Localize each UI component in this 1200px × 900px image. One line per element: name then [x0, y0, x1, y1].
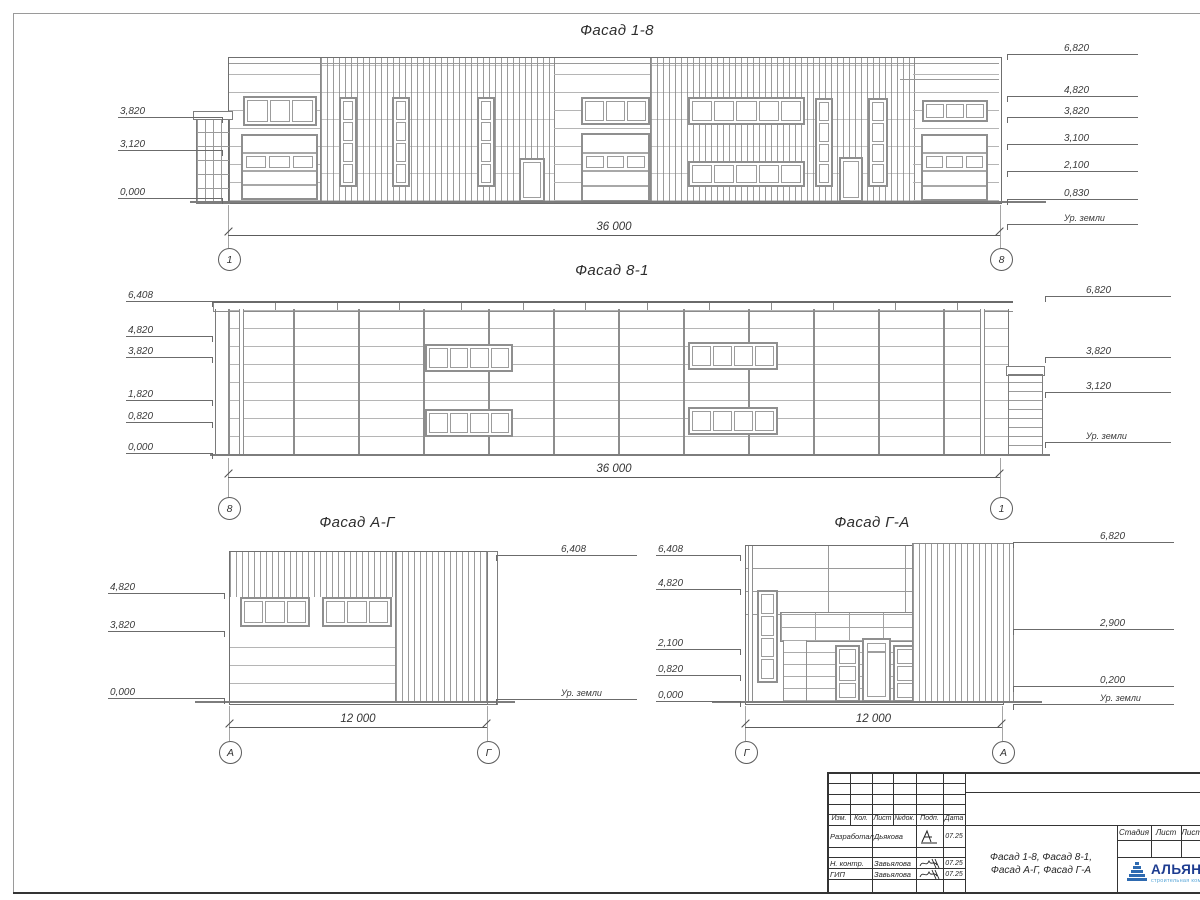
frame-bottom: [13, 892, 1200, 894]
garage-door: [581, 133, 650, 202]
tb-stage: Стадия: [1117, 828, 1151, 837]
extension-line: [1000, 205, 1001, 248]
tb-col-izm: Изм.: [828, 815, 850, 822]
level-mark: 3,820: [1008, 106, 1138, 118]
slat-parapet: [230, 552, 395, 597]
dimension-line: 12 000: [745, 727, 1002, 728]
dimension-label: 36 000: [228, 463, 1000, 475]
axis-bubble: Г: [477, 741, 500, 764]
tall-window: [339, 97, 357, 187]
company-logo-tagline: строительная компания: [1151, 878, 1200, 884]
extension-line: [1000, 458, 1001, 498]
frame-top: [13, 13, 1200, 14]
titleblock-border: [828, 772, 1200, 774]
tb-date: 07.25: [944, 833, 964, 840]
garage-door: [921, 134, 988, 201]
tb-date: 07.25: [944, 860, 964, 867]
level-mark: 6,820: [1008, 43, 1138, 55]
window: [243, 96, 317, 126]
level-mark: 3,820: [108, 620, 224, 632]
ribbon-window: [425, 409, 513, 437]
dimension-label: 12 000: [229, 713, 487, 725]
titleblock-line: [828, 783, 965, 784]
titleblock-border: [827, 772, 829, 893]
level-mark: 3,820: [1046, 346, 1171, 358]
facade-a-g-title: Фасад А-Г: [297, 514, 417, 531]
titleblock-line: [1117, 840, 1200, 841]
ribbon-window: [688, 97, 805, 125]
tb-col-podp: Подп.: [916, 815, 943, 822]
dimension-label: 12 000: [745, 713, 1002, 725]
tb-name: Завьялова: [874, 870, 915, 879]
facade-8-1-body: [228, 309, 1009, 455]
level-mark: 3,100: [1008, 133, 1138, 145]
ground-line: [210, 454, 1050, 456]
company-logo-name: АЛЬЯНС: [1151, 862, 1200, 877]
level-mark: 6,408: [126, 290, 212, 302]
tb-col-kol: Кол.: [850, 815, 872, 822]
axis-bubble: Г: [735, 741, 758, 764]
level-mark: 6,820: [1014, 531, 1174, 543]
downpipe: [980, 309, 985, 455]
signature: [918, 869, 942, 880]
axis-bubble: А: [219, 741, 242, 764]
level-mark: 3,120: [1046, 381, 1171, 393]
tall-window: [477, 97, 495, 187]
door: [839, 157, 863, 202]
ground-level-mark: Ур. земли: [1046, 431, 1171, 443]
signature: [918, 828, 942, 846]
level-mark: 0,000: [118, 187, 222, 199]
ribbon-window: [688, 161, 805, 187]
titleblock-line: [828, 825, 1200, 826]
ribbon-window: [688, 342, 778, 370]
axis-bubble: 8: [990, 248, 1013, 271]
doc-title-line1: Фасад 1-8, Фасад 8-1,: [967, 851, 1115, 864]
tb-role: Разработал: [830, 832, 872, 841]
window: [240, 597, 310, 627]
tb-col-ndok: №док.: [893, 815, 916, 822]
tb-col-list: Лист: [872, 815, 893, 822]
stone-quoin: [783, 640, 807, 701]
level-mark: 4,820: [126, 325, 212, 337]
dimension-line: 12 000: [229, 727, 487, 728]
entrance-canopy: [780, 612, 915, 642]
downpipe: [239, 309, 244, 455]
window: [581, 97, 650, 125]
tb-sheets: Листов: [1181, 828, 1200, 837]
tall-window: [757, 590, 778, 683]
window: [922, 100, 988, 122]
drawing-sheet: Фасад 1-8 3,820 3,120 0,000 6,820 4,820 …: [0, 0, 1200, 900]
tb-name: Дьякова: [874, 832, 915, 841]
dimension-line: 36 000: [228, 235, 1000, 236]
level-mark: 2,100: [1008, 160, 1138, 172]
level-mark: 4,820: [656, 578, 740, 590]
titleblock-line: [916, 773, 917, 893]
tall-window: [815, 98, 833, 187]
level-mark: 6,820: [1046, 285, 1171, 297]
corner-column: [215, 309, 229, 455]
window: [322, 597, 392, 627]
titleblock-line: [828, 868, 965, 869]
downpipe: [748, 546, 753, 701]
ground-line: [195, 701, 515, 703]
door: [519, 158, 545, 202]
level-mark: 3,120: [118, 139, 222, 151]
parapet-step-line: [900, 79, 999, 80]
entrance-door: [862, 638, 891, 702]
ground-level-mark: Ур. земли: [497, 688, 637, 700]
axis-bubble: 1: [218, 248, 241, 271]
level-mark: 2,900: [1014, 618, 1174, 630]
titleblock-line: [828, 857, 965, 858]
company-logo-icon: [1127, 861, 1147, 885]
titleblock-line: [965, 792, 1200, 793]
level-mark: 1,820: [126, 389, 212, 401]
axis-bubble: 8: [218, 497, 241, 520]
facade-g-a-title: Фасад Г-А: [812, 514, 932, 531]
siding-wall: [230, 630, 395, 702]
axis-bubble: 1: [990, 497, 1013, 520]
slat-cladding: [395, 552, 488, 702]
signature: [918, 858, 942, 869]
titleblock-line: [828, 804, 965, 805]
ground-line: [712, 701, 1042, 703]
ribbon-window: [425, 344, 513, 372]
side-annex: [1008, 374, 1043, 456]
tall-window: [868, 98, 888, 187]
doc-title-line2: Фасад А-Г, Фасад Г-А: [967, 864, 1115, 877]
ground-level-mark: Ур. земли: [1008, 213, 1138, 225]
dimension-line: 36 000: [228, 477, 1000, 478]
level-mark: 3,820: [126, 346, 212, 358]
wall-mullion: [828, 546, 829, 614]
sidelight-window: [835, 645, 860, 702]
level-mark: 0,830: [1008, 188, 1138, 200]
level-mark: 6,408: [656, 544, 740, 556]
tb-col-data: Дата: [943, 815, 965, 822]
frame-left: [13, 13, 14, 893]
titleblock-line: [965, 773, 966, 893]
level-mark: 4,820: [1008, 85, 1138, 97]
level-mark: 0,820: [656, 664, 740, 676]
titleblock-line: [828, 847, 965, 848]
tall-window: [392, 97, 410, 187]
level-mark: 4,820: [108, 582, 224, 594]
titleblock-line: [828, 794, 965, 795]
ribbon-window: [688, 407, 778, 435]
tb-role: Н. контр.: [830, 859, 872, 868]
dimension-label: 36 000: [228, 221, 1000, 233]
level-mark: 0,000: [656, 690, 740, 702]
facade-1-8-title: Фасад 1-8: [557, 22, 677, 39]
level-mark: 0,000: [108, 687, 224, 699]
slat-screen: [912, 543, 1014, 702]
level-mark: 0,820: [126, 411, 212, 423]
axis-bubble: А: [992, 741, 1015, 764]
garage-door: [241, 134, 318, 200]
corner-trim: [487, 551, 498, 705]
level-mark: 2,100: [656, 638, 740, 650]
level-mark: 3,820: [118, 106, 222, 118]
level-mark: 0,200: [1014, 675, 1174, 687]
tb-name: Завьялова: [874, 859, 915, 868]
ground-level-mark: Ур. земли: [1014, 693, 1174, 705]
titleblock-line: [828, 879, 965, 880]
wall-joint: [746, 568, 912, 569]
tb-sheet: Лист: [1151, 828, 1181, 837]
doc-title: Фасад 1-8, Фасад 8-1, Фасад А-Г, Фасад Г…: [967, 851, 1115, 877]
ground-line: [190, 201, 1046, 203]
tb-role: ГИП: [830, 870, 872, 879]
wall-mullion: [905, 546, 906, 614]
level-mark: 6,408: [497, 544, 637, 556]
level-mark: 0,000: [126, 442, 212, 454]
facade-8-1-title: Фасад 8-1: [552, 262, 672, 279]
titleblock-line: [1117, 857, 1200, 858]
tb-date: 07.25: [944, 871, 964, 878]
